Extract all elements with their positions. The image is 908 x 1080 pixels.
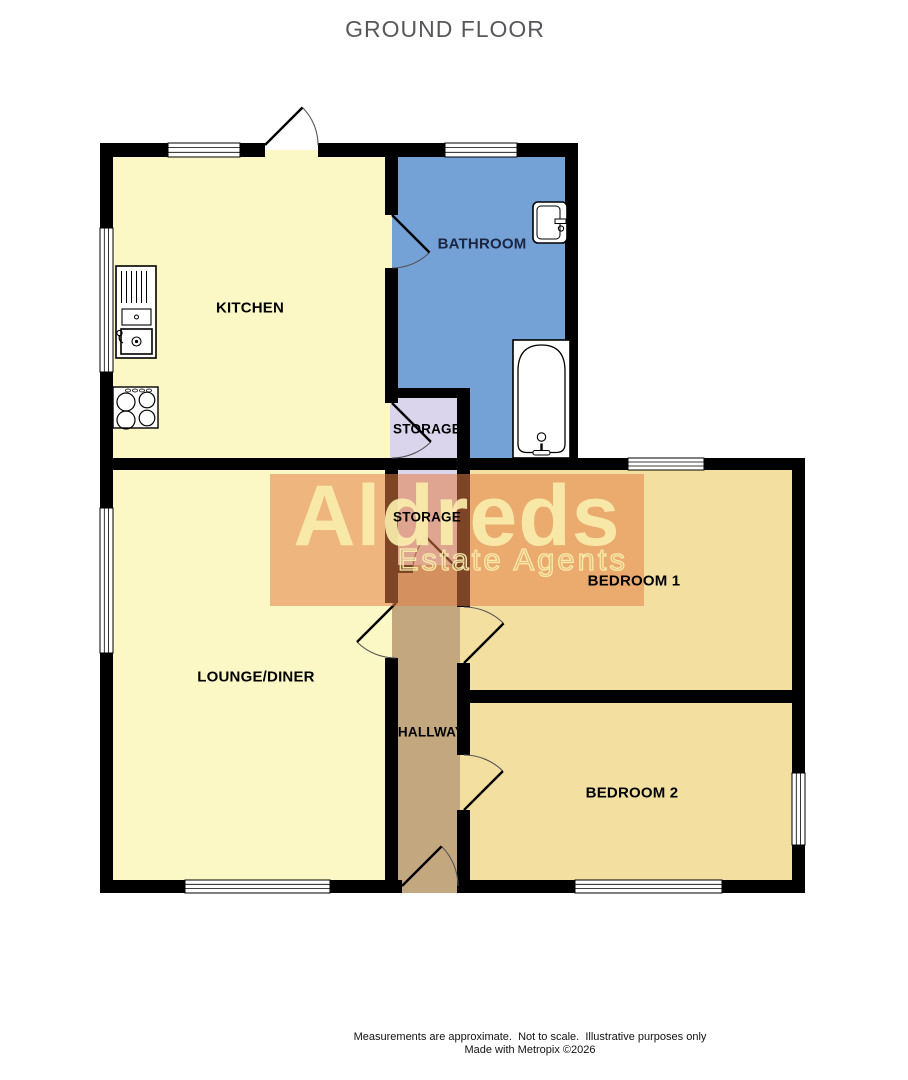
basin-icon bbox=[533, 202, 567, 243]
window bbox=[100, 508, 113, 653]
label-storage-1: STORAGE bbox=[393, 422, 461, 437]
label-kitchen: KITCHEN bbox=[216, 300, 284, 317]
label-bedroom-2: BEDROOM 2 bbox=[586, 785, 679, 802]
footer-line-2: Made with Metropix ©2026 bbox=[354, 1044, 707, 1057]
footer-line-1: Measurements are approximate. Not to sca… bbox=[354, 1031, 707, 1044]
floorplan-canvas: GROUND FLOOR bbox=[0, 0, 908, 1080]
hob-icon bbox=[113, 387, 158, 429]
footer-disclaimer: Measurements are approximate. Not to sca… bbox=[354, 1031, 707, 1057]
window bbox=[575, 880, 722, 893]
window bbox=[168, 143, 240, 157]
floorplan-drawing bbox=[0, 0, 908, 1080]
label-lounge: LOUNGE/DINER bbox=[197, 669, 314, 686]
bathtub-icon bbox=[513, 340, 570, 458]
window bbox=[628, 458, 704, 470]
window bbox=[792, 773, 805, 845]
window bbox=[445, 143, 517, 157]
label-hallway: HALLWAY bbox=[398, 725, 464, 740]
door-front bbox=[265, 108, 318, 146]
window bbox=[185, 880, 330, 893]
label-bedroom-1: BEDROOM 1 bbox=[588, 573, 681, 590]
kitchen-sink-icon bbox=[116, 266, 156, 358]
label-storage-2: STORAGE bbox=[393, 510, 461, 525]
label-bathroom: BATHROOM bbox=[438, 236, 527, 253]
window bbox=[100, 228, 113, 372]
